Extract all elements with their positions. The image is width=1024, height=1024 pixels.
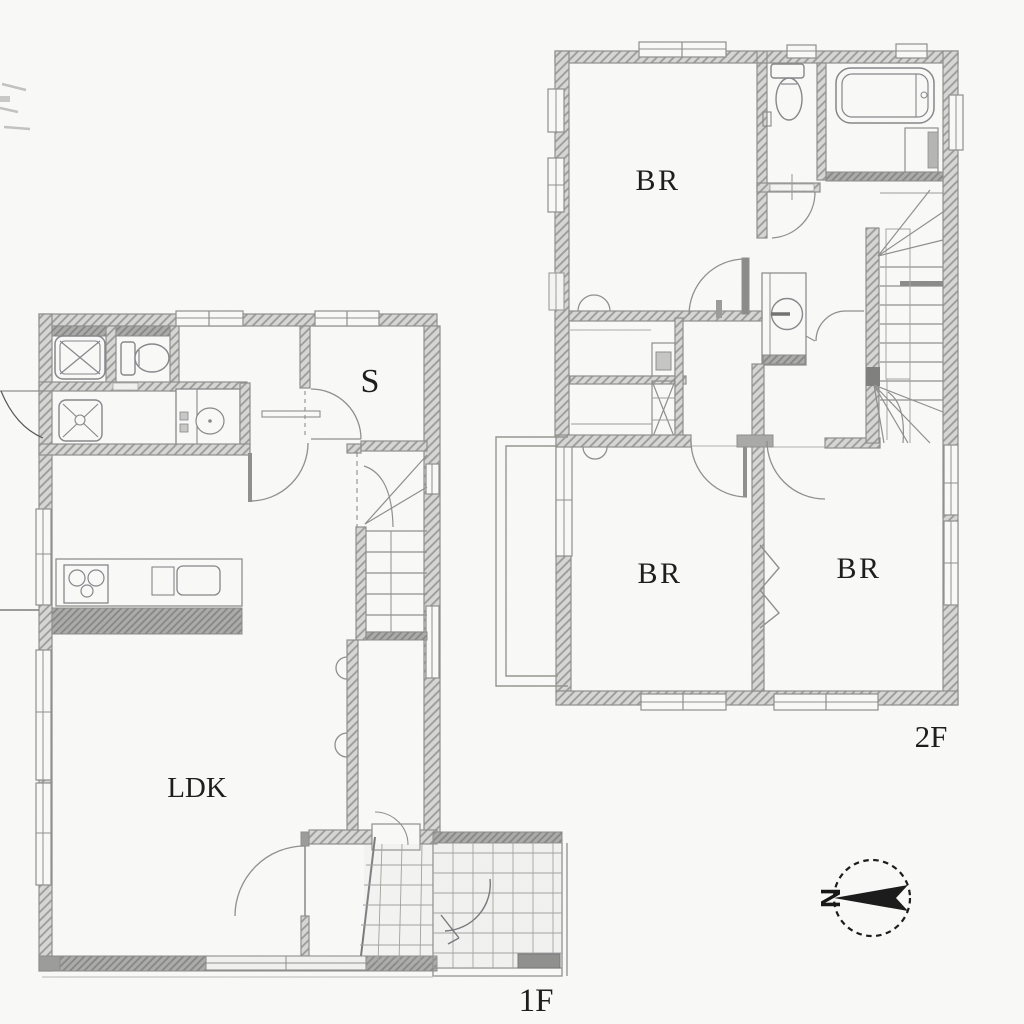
svg-text:N: N bbox=[815, 888, 846, 908]
